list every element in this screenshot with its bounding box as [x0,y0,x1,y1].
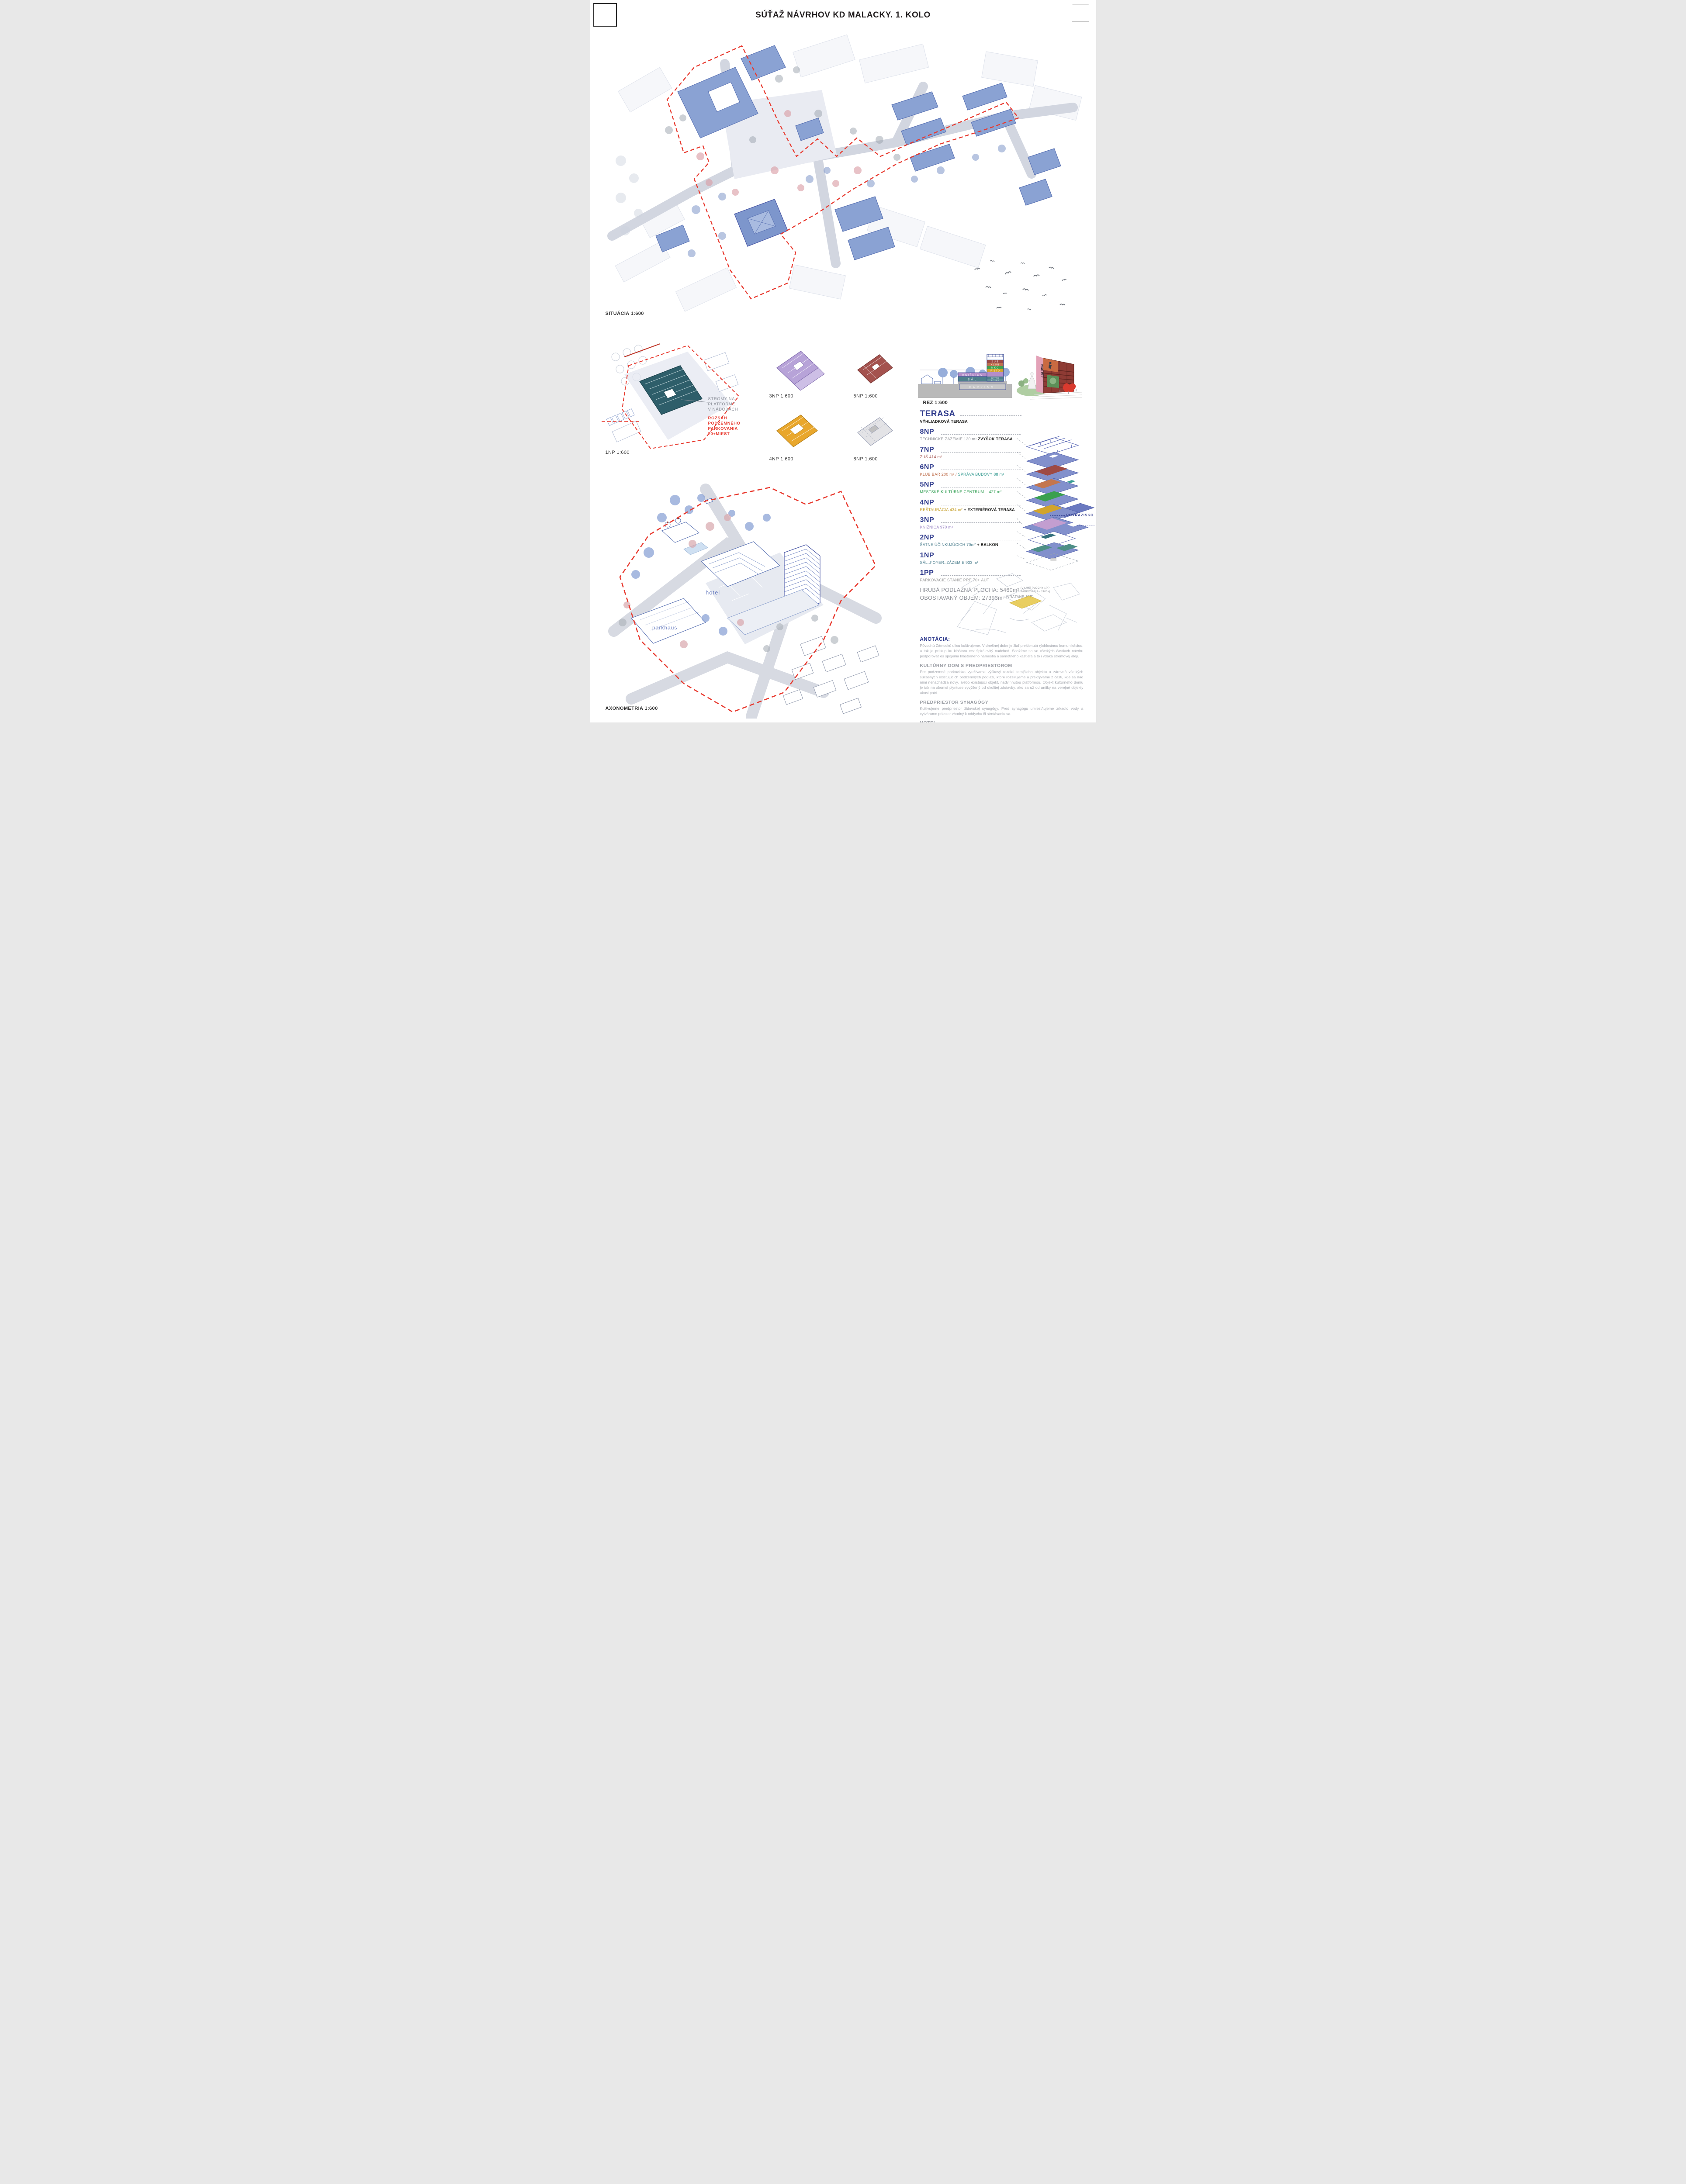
leader-dashed-line [941,558,1021,558]
annotation-stromy: STROMY NA PLATFORME V NÁDOBÁCH [708,397,738,412]
annotation-heading: KULTÚRNY DOM S PREDPRIESTOROM [920,663,1084,668]
synagogue [662,518,708,555]
program-part: VÝHLIADKOVÁ TERASA [920,419,968,424]
annotation-rozsah: ROZSAH PODZEMNÉHO PARKOVANIA 70+MIEST [708,416,741,437]
plan-5np-drawing [849,346,897,389]
annotation-line: ROZSAH [708,416,741,421]
leader-dashed-line [941,470,1021,470]
registration-box-right [1072,4,1089,21]
program-part: MESTSKÉ KULTÚRNE CENTRUM... 427 m² [920,490,1002,494]
exploded-axonometric [1016,413,1095,584]
leader-arrows [1017,439,1025,559]
annotation-block: HOTEL V bezprostrednej blízkosti objektu… [920,720,1084,722]
annotation-block: ANOTÁCIA: Pôvodnú Zámockú ulicu kultivuj… [920,637,1084,659]
program-part: REŠTAURÁCIA 434 m² [920,508,964,512]
kd-building [734,199,788,246]
hand-sketch [944,561,1086,642]
annotation-heading: ANOTÁCIA: [920,637,1084,642]
program-part: ZUŠ 414 m² [920,455,942,459]
section-house [921,375,941,384]
leader-dashed-line [941,452,1021,453]
povrazisko-leader [1050,515,1065,516]
np1-label: 1NP 1:600 [606,450,630,455]
annotation-body: Pôvodnú Zámockú ulicu kultivujeme. V dne… [920,643,1084,659]
sal-band-text: SÁL [967,377,977,381]
rez-label: REZ 1:600 [923,400,948,405]
povrazisko-label: POVRAZISKO [1066,513,1094,517]
program-part: ZVYŠOK TERASA [978,437,1013,441]
section-tower: T ZUŠ KLUB MKC RISTO ŠATNE FOYER [987,354,1004,382]
foyer-text: FOYER [991,380,999,382]
program-part: KLUB BAR 200 m² / [920,472,958,477]
sketch-gold-building [1010,596,1042,608]
parking-rows [606,409,634,426]
annotation-line: PLATFORME [708,402,738,407]
program-part: + BALKON [977,543,998,547]
plan-3np-drawing [766,342,827,390]
leader-dashed-line [941,505,1021,505]
program-part: TECHNICKÉ ZÁZEMIE 120 m² [920,437,978,441]
np5-label: 5NP 1:600 [854,394,878,399]
plan-8np-drawing [849,410,897,450]
zus-text: ZUŠ [991,360,999,363]
annotation-body: Pre podzemné parkovisko využívame výškov… [920,669,1084,696]
np8-label: 8NP 1:600 [854,456,878,462]
leader-dashed-line [941,522,1021,523]
situacia-label: SITUÁCIA 1:600 [606,311,644,316]
axonometria-label: AXONOMETRIA 1:600 [606,706,658,711]
annotation-block: KULTÚRNY DOM S PREDPRIESTOROM Pre podzem… [920,663,1084,696]
birds-flock [974,260,1066,310]
np4-label: 4NP 1:600 [769,456,793,462]
hotel-label: hotel [706,589,720,596]
annotation-line: PODZEMNÉHO [708,421,741,426]
parkhaus-label: parkhaus [652,625,677,631]
program-part: + EXTERIÉROVÁ TERASA [964,508,1015,512]
annotation-line: V NÁDOBÁCH [708,407,738,412]
annotation-column: ANOTÁCIA: Pôvodnú Zámockú ulicu kultivuj… [920,637,1084,722]
annotation-line: 70+MIEST [708,432,741,437]
program-part: KNIŽNICA 970 m² [920,525,953,529]
plan-4np-drawing [766,405,823,453]
axonometric-drawing: hotel parkhaus [596,474,898,719]
t-text: T [989,358,990,360]
annotation-line: PARKOVANIA [708,426,741,432]
plate-4np [1026,503,1094,521]
plate-1np [1026,543,1078,559]
satne-text: ŠATNE [991,377,999,380]
np3-label: 3NP 1:600 [769,394,793,399]
section-drawing: PARKING KNIŽNICA SÁL T ZUŠ KLUB MKC RIST… [918,351,1012,398]
competition-board: SÚŤAŽ NÁVRHOV KD MALACKY. 1. KOLO [590,0,1096,722]
leader-dashed-line [941,540,1021,540]
page-title: SÚŤAŽ NÁVRHOV KD MALACKY. 1. KOLO [590,10,1096,20]
statue [1028,373,1036,389]
site-plan-drawing [590,25,1096,318]
mkc-text: MKC [991,367,999,370]
leader-dashed-line [941,487,1021,487]
red-edge-line [624,344,660,357]
annotation-heading: PREDPRIESTOR SYNAGÓGY [920,700,1084,705]
kniznica-band-text: KNIŽNICA [962,373,982,377]
context-buildings [615,35,1082,311]
klub-text: KLUB [990,364,999,366]
render-perspective: Manet and Modern Beauty [1016,349,1083,401]
risto-text: RISTO [990,370,1000,373]
annotation-line: STROMY NA [708,397,738,402]
leader-dashed-line [960,415,1021,416]
leader-dashed-line [941,434,1021,435]
annotation-block: PREDPRIESTOR SYNAGÓGY Kultivujeme predpr… [920,700,1084,716]
annotation-heading: HOTEL [920,720,1084,722]
parking-text: PARKING [969,386,995,389]
annotation-body: Kultivujeme predpriestor židovskej synag… [920,706,1084,716]
plate-terasa-pergola [1026,436,1078,454]
program-part: SPRÁVA BUDOVY 88 m² [958,472,1004,477]
registration-box-left [593,3,617,27]
program-part: ŠATNE ÚČINKUJÚCICH 70m² [920,543,977,547]
